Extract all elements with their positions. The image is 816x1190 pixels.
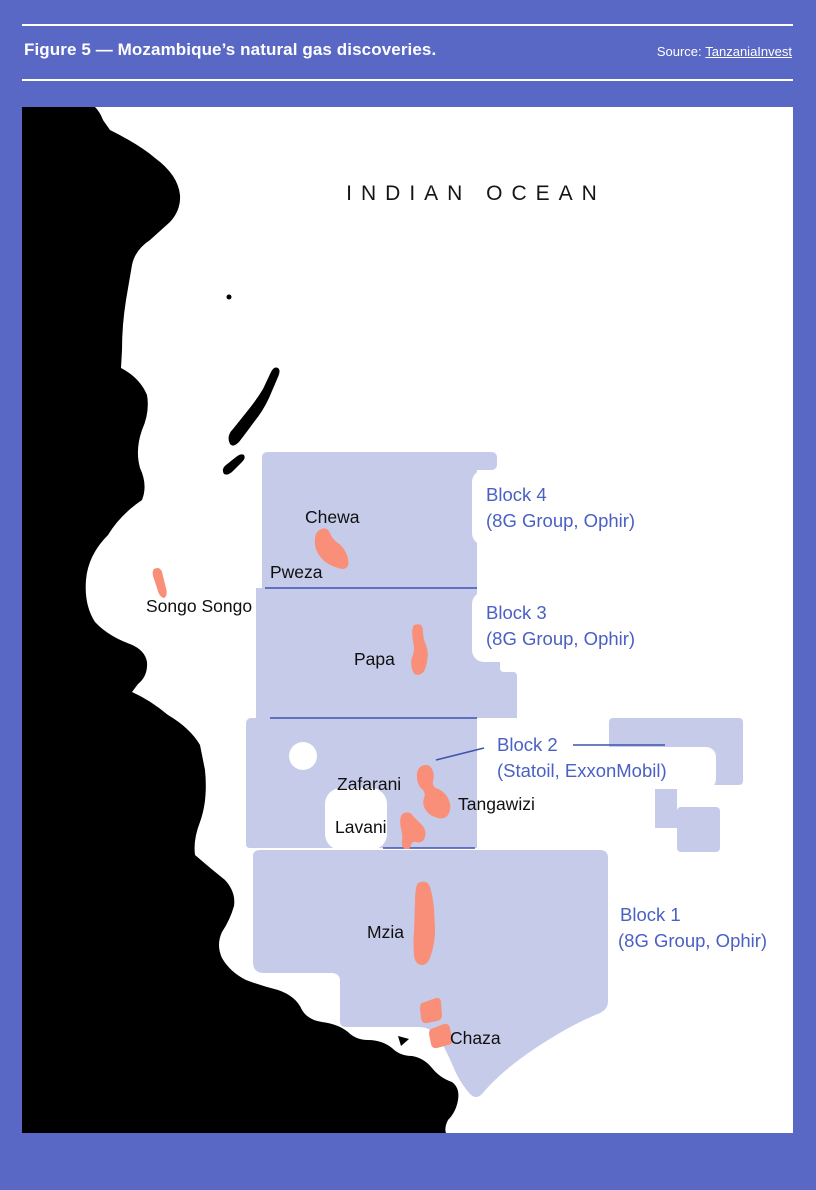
source-attribution: Source: TanzaniaInvest — [657, 44, 792, 59]
field-label-lavani: Lavani — [335, 817, 387, 837]
block-2-operators: (Statoil, ExxonMobil) — [497, 760, 667, 781]
block-2-name: Block 2 — [497, 734, 558, 755]
header-top-rule — [22, 24, 793, 26]
block-4-name: Block 4 — [486, 484, 547, 505]
islet-dot — [227, 295, 232, 300]
map-figure: INDIAN OCEAN Chewa Pweza Songo Songo Pap… — [22, 107, 793, 1133]
ocean-label: INDIAN OCEAN — [346, 182, 606, 205]
field-label-zafarani: Zafarani — [337, 774, 401, 794]
block-4-label-plate — [472, 470, 722, 545]
source-link[interactable]: TanzaniaInvest — [705, 44, 792, 59]
block-4-operators: (8G Group, Ophir) — [486, 510, 635, 531]
block-2-east-foot — [677, 807, 720, 852]
block-1-name: Block 1 — [620, 904, 681, 925]
block-1-operators: (8G Group, Ophir) — [618, 930, 767, 951]
field-label-mzia: Mzia — [367, 922, 404, 942]
block-3-operators: (8G Group, Ophir) — [486, 628, 635, 649]
field-label-pweza: Pweza — [270, 562, 323, 582]
header-bottom-rule — [22, 79, 793, 81]
source-label: Source: — [657, 44, 702, 59]
field-label-songo-songo: Songo Songo — [146, 596, 252, 616]
field-label-chewa: Chewa — [305, 507, 360, 527]
field-label-papa: Papa — [354, 649, 395, 669]
field-label-chaza: Chaza — [450, 1028, 501, 1048]
block-2-west-notch-1 — [289, 742, 317, 770]
field-label-tangawizi: Tangawizi — [458, 794, 535, 814]
block-2-east-arm — [655, 785, 677, 828]
figure-title: Figure 5 — Mozambique’s natural gas disc… — [24, 40, 436, 60]
block-3-name: Block 3 — [486, 602, 547, 623]
field-mzia-shape — [414, 882, 436, 965]
